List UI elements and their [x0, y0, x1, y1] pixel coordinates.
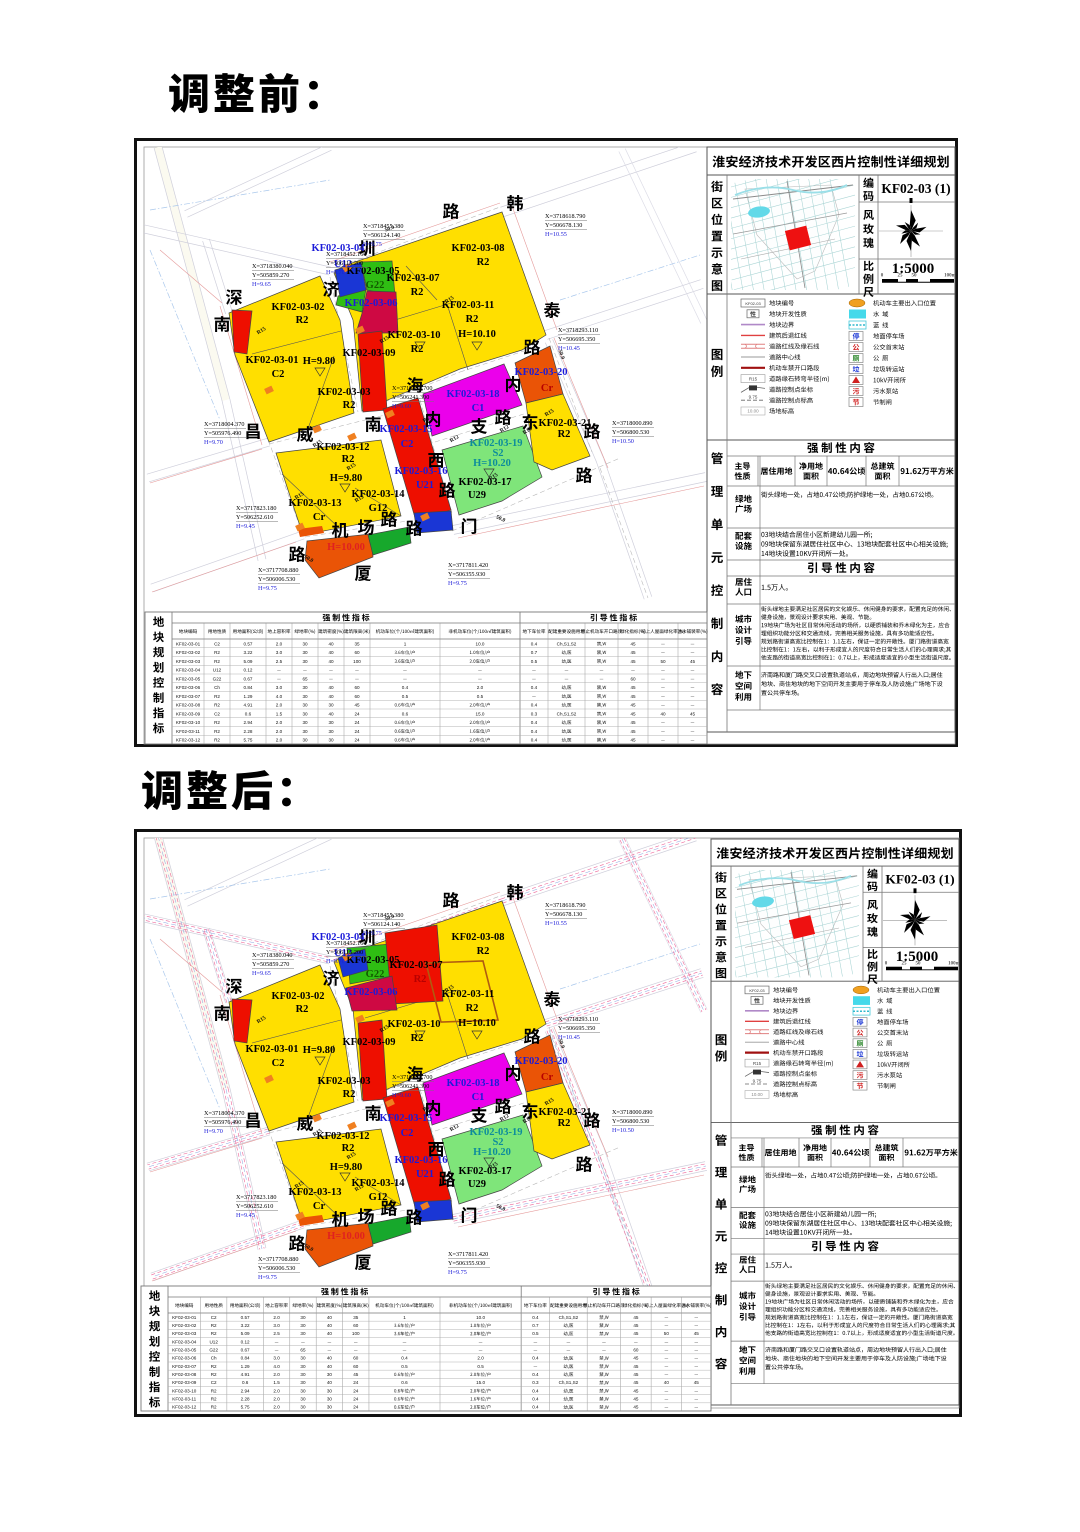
svg-text:40: 40: [328, 641, 334, 646]
svg-text:30: 30: [300, 1372, 306, 1377]
svg-text:3.22: 3.22: [244, 650, 253, 655]
svg-text:100: 100: [353, 659, 361, 664]
svg-text:R2: R2: [477, 257, 490, 268]
svg-text:KF02-03-07: KF02-03-07: [386, 273, 439, 284]
svg-text:0.7: 0.7: [531, 650, 538, 655]
svg-text:R2: R2: [214, 738, 220, 743]
svg-text:KF02-03 (1): KF02-03 (1): [885, 872, 954, 887]
svg-text:H=9.65: H=9.65: [252, 281, 271, 288]
svg-text:60: 60: [354, 685, 360, 690]
svg-text:Y=506800.530: Y=506800.530: [612, 429, 649, 436]
svg-text:60: 60: [353, 1364, 359, 1369]
svg-text:X=3718293.110: X=3718293.110: [558, 327, 598, 334]
svg-text:Ch: Ch: [214, 685, 220, 690]
svg-text:KF02-03: KF02-03: [745, 301, 761, 306]
svg-text:KF02-03-16: KF02-03-16: [394, 466, 447, 477]
svg-text:KF02-03-07: KF02-03-07: [176, 694, 201, 699]
svg-text:C1: C1: [472, 403, 485, 414]
svg-text:24: 24: [354, 711, 360, 716]
svg-text:40: 40: [328, 659, 334, 664]
svg-text:KF02-03-06: KF02-03-06: [176, 685, 201, 690]
svg-text:Y=506695.350: Y=506695.350: [558, 1025, 595, 1032]
svg-text:0.4: 0.4: [532, 1372, 539, 1377]
svg-text:G12: G12: [369, 1192, 388, 1203]
svg-text:45: 45: [633, 1364, 639, 1369]
svg-text:KF02-03-08: KF02-03-08: [172, 1372, 197, 1377]
svg-text:15.0: 15.0: [476, 1380, 485, 1385]
svg-text:KF02-03-08: KF02-03-08: [176, 703, 201, 708]
svg-text:9.75: 9.75: [753, 1079, 762, 1084]
svg-text:45: 45: [633, 1397, 639, 1402]
svg-text:Y=506241.300: Y=506241.300: [392, 394, 429, 401]
svg-text:C1: C1: [472, 1092, 485, 1103]
svg-text:0.57: 0.57: [244, 641, 253, 646]
svg-text:45: 45: [630, 738, 636, 743]
svg-text:KF02-03-20: KF02-03-20: [514, 367, 567, 378]
svg-text:KF02-03-02: KF02-03-02: [172, 1323, 197, 1328]
svg-text:R2: R2: [211, 1331, 217, 1336]
svg-text:40: 40: [328, 711, 334, 716]
svg-text:KF02-03-16: KF02-03-16: [394, 1155, 447, 1166]
svg-text:R2: R2: [558, 429, 571, 440]
svg-text:2.0: 2.0: [273, 1388, 280, 1393]
svg-text:2.0: 2.0: [477, 685, 484, 690]
svg-text:25: 25: [898, 274, 904, 279]
svg-text:KF02-03-08: KF02-03-08: [451, 932, 504, 943]
svg-text:H=9.75: H=9.75: [258, 585, 277, 592]
svg-text:C2: C2: [211, 1380, 217, 1385]
svg-text:24: 24: [353, 1405, 359, 1410]
svg-text:45: 45: [353, 1372, 359, 1377]
svg-text:KF02-03-08: KF02-03-08: [451, 243, 504, 254]
svg-text:45: 45: [630, 641, 636, 646]
svg-text:30: 30: [328, 729, 334, 734]
svg-text:45: 45: [630, 729, 636, 734]
svg-text:5.75: 5.75: [241, 1405, 250, 1410]
svg-text:0.7: 0.7: [532, 1323, 539, 1328]
svg-text:65: 65: [302, 676, 308, 681]
svg-text:X=3718618.790: X=3718618.790: [545, 213, 585, 220]
svg-text:KF02-03-12: KF02-03-12: [176, 738, 201, 743]
svg-text:0.12: 0.12: [241, 1339, 250, 1344]
svg-text:KF02-03-21: KF02-03-21: [538, 1107, 591, 1118]
svg-text:R2: R2: [296, 315, 309, 326]
svg-text:0.57: 0.57: [241, 1315, 250, 1320]
svg-text:60: 60: [353, 1356, 359, 1361]
svg-text:40: 40: [664, 1380, 670, 1385]
svg-text:U29: U29: [468, 1179, 486, 1190]
svg-text:H=9.75: H=9.75: [363, 241, 382, 248]
svg-text:3.0: 3.0: [276, 650, 283, 655]
svg-text:30: 30: [327, 1397, 333, 1402]
svg-text:KF02-03-06: KF02-03-06: [172, 1356, 197, 1361]
svg-text:KF02-03-15: KF02-03-15: [379, 1113, 432, 1124]
svg-text:1.29: 1.29: [244, 694, 253, 699]
svg-text:1.29: 1.29: [241, 1364, 250, 1369]
svg-text:KF02-03-02: KF02-03-02: [271, 302, 324, 313]
svg-text:45: 45: [633, 1323, 639, 1328]
svg-text:24: 24: [353, 1388, 359, 1393]
svg-text:30: 30: [300, 1364, 306, 1369]
svg-text:40: 40: [660, 711, 666, 716]
svg-text:50: 50: [660, 659, 666, 664]
svg-text:0.4: 0.4: [531, 641, 538, 646]
svg-text:50: 50: [664, 1331, 670, 1336]
svg-text:X=3718452.160: X=3718452.160: [326, 940, 366, 947]
svg-text:2.5: 2.5: [276, 659, 283, 664]
svg-text:2.0: 2.0: [276, 738, 283, 743]
svg-text:R2: R2: [211, 1405, 217, 1410]
svg-text:2.28: 2.28: [241, 1397, 250, 1402]
svg-text:2.94: 2.94: [241, 1388, 250, 1393]
svg-text:KF02-03-12: KF02-03-12: [316, 1131, 369, 1142]
svg-text:G22: G22: [209, 1348, 218, 1353]
svg-text:U12: U12: [209, 1339, 218, 1344]
svg-text:0.4: 0.4: [532, 1388, 539, 1393]
svg-text:0.84: 0.84: [244, 685, 253, 690]
svg-text:30: 30: [302, 650, 308, 655]
svg-text:2.0: 2.0: [273, 1397, 280, 1402]
svg-text:KF02-03-15: KF02-03-15: [379, 424, 432, 435]
svg-text:C2: C2: [272, 369, 285, 380]
svg-text:45: 45: [630, 694, 636, 699]
svg-text:X=3718129.700: X=3718129.700: [392, 1074, 432, 1081]
svg-text:X=3718000.890: X=3718000.890: [612, 420, 652, 427]
svg-text:5.09: 5.09: [241, 1331, 250, 1336]
svg-text:40: 40: [327, 1331, 333, 1336]
svg-text:Ch,S1,S2: Ch,S1,S2: [557, 641, 577, 646]
svg-text:KF02-03-05: KF02-03-05: [176, 676, 201, 681]
svg-text:Cr: Cr: [313, 1201, 326, 1212]
svg-text:U21: U21: [416, 480, 434, 491]
svg-text:R2: R2: [211, 1388, 217, 1393]
svg-text:X=3717811.420: X=3717811.420: [448, 562, 488, 569]
svg-text:X=3717823.180: X=3717823.180: [236, 1194, 276, 1201]
svg-text:100: 100: [352, 1331, 360, 1336]
svg-text:KF02-03-17: KF02-03-17: [458, 477, 511, 488]
svg-text:R15: R15: [753, 1061, 762, 1066]
svg-text:Y=506241.300: Y=506241.300: [392, 1083, 429, 1090]
svg-text:Y=506355.930: Y=506355.930: [448, 571, 485, 578]
svg-text:R2: R2: [558, 1118, 571, 1129]
svg-text:X=3718452.160: X=3718452.160: [326, 251, 366, 258]
svg-text:U21: U21: [416, 1169, 434, 1180]
svg-text:0.5: 0.5: [477, 1364, 484, 1369]
svg-text:X=3718000.890: X=3718000.890: [612, 1109, 652, 1116]
svg-text:X=3717708.880: X=3717708.880: [258, 567, 298, 574]
svg-text:45: 45: [694, 1331, 700, 1336]
svg-text:U12: U12: [213, 668, 222, 673]
svg-text:KF02-03-09: KF02-03-09: [342, 348, 395, 359]
svg-text:X=3717708.880: X=3717708.880: [258, 1256, 298, 1263]
svg-text:45: 45: [354, 703, 360, 708]
svg-text:X=3717811.420: X=3717811.420: [448, 1251, 488, 1258]
svg-text:2.0: 2.0: [273, 1405, 280, 1410]
svg-text:KF02-03-18: KF02-03-18: [446, 389, 499, 400]
svg-text:0.84: 0.84: [241, 1356, 250, 1361]
svg-text:3.22: 3.22: [241, 1323, 250, 1328]
svg-text:Y=505976.490: Y=505976.490: [204, 1119, 241, 1126]
svg-text:KF02-03-04: KF02-03-04: [176, 668, 201, 673]
svg-text:40: 40: [328, 685, 334, 690]
svg-text:0.4: 0.4: [532, 1397, 539, 1402]
svg-text:100m: 100m: [948, 961, 960, 966]
svg-text:30: 30: [300, 1405, 306, 1410]
svg-text:Y=506252.610: Y=506252.610: [236, 1203, 273, 1210]
svg-text:45: 45: [633, 1380, 639, 1385]
svg-text:1: 1: [403, 1315, 406, 1320]
svg-text:H=9.60: H=9.60: [392, 403, 411, 410]
svg-text:KF02-03-12: KF02-03-12: [172, 1405, 197, 1410]
svg-text:Y=506006.530: Y=506006.530: [258, 1265, 295, 1272]
svg-text:24: 24: [353, 1380, 359, 1385]
svg-text:30: 30: [302, 659, 308, 664]
svg-text:G22: G22: [366, 969, 385, 980]
svg-text:KF02-03-01: KF02-03-01: [245, 355, 298, 366]
svg-text:C2: C2: [211, 1315, 217, 1320]
svg-text:0.4: 0.4: [531, 729, 538, 734]
svg-text:60: 60: [633, 1348, 639, 1353]
svg-text:H=9.75: H=9.75: [448, 580, 467, 587]
svg-text:H=10.55: H=10.55: [545, 920, 567, 927]
svg-text:R2: R2: [214, 659, 220, 664]
svg-text:Y=506115.200: Y=506115.200: [326, 949, 363, 956]
svg-text:KF02-03-01: KF02-03-01: [176, 641, 201, 646]
svg-text:50: 50: [912, 274, 918, 279]
svg-text:0.12: 0.12: [244, 668, 253, 673]
svg-text:35: 35: [354, 641, 360, 646]
svg-text:KF02-03-06: KF02-03-06: [344, 298, 397, 309]
svg-text:H=9.45: H=9.45: [236, 1212, 255, 1219]
svg-text:4.91: 4.91: [241, 1372, 250, 1377]
svg-text:G22: G22: [213, 676, 222, 681]
svg-text:0.4: 0.4: [532, 1405, 539, 1410]
svg-text:R2: R2: [296, 1004, 309, 1015]
svg-text:X=3718380.040: X=3718380.040: [252, 263, 292, 270]
svg-text:30: 30: [327, 1372, 333, 1377]
svg-text:30: 30: [300, 1380, 306, 1385]
svg-text:KF02-03-05: KF02-03-05: [172, 1348, 197, 1353]
svg-text:KF02-03-01: KF02-03-01: [245, 1044, 298, 1055]
svg-text:Y=505859.270: Y=505859.270: [252, 961, 289, 968]
svg-text:H=9.80: H=9.80: [303, 1045, 336, 1056]
svg-text:0.4: 0.4: [531, 720, 538, 725]
svg-text:KF02-03-02: KF02-03-02: [176, 650, 201, 655]
svg-text:H=10.50: H=10.50: [612, 438, 634, 445]
svg-text:0.5: 0.5: [532, 1331, 539, 1336]
svg-text:0.5: 0.5: [401, 1364, 408, 1369]
svg-text:H=9.45: H=9.45: [236, 523, 255, 530]
svg-text:30: 30: [300, 1356, 306, 1361]
svg-text:2.0: 2.0: [276, 641, 283, 646]
svg-text:1: 1: [404, 641, 407, 646]
svg-text:Cr: Cr: [541, 1072, 554, 1083]
svg-text:30: 30: [328, 703, 334, 708]
svg-text:H=10.20: H=10.20: [473, 458, 511, 469]
svg-text:H=10.10: H=10.10: [458, 329, 496, 340]
svg-text:1.5: 1.5: [273, 1380, 280, 1385]
svg-text:R2: R2: [214, 703, 220, 708]
svg-text:45: 45: [694, 1380, 700, 1385]
svg-text:2.5: 2.5: [273, 1331, 280, 1336]
svg-text:30: 30: [302, 694, 308, 699]
svg-text:1.5: 1.5: [276, 711, 283, 716]
svg-text:G22: G22: [366, 280, 385, 291]
svg-text:Y=506355.930: Y=506355.930: [448, 1260, 485, 1267]
svg-text:KF02-03-04: KF02-03-04: [172, 1339, 197, 1344]
svg-text:Ch,S1,S2: Ch,S1,S2: [559, 1315, 579, 1320]
svg-text:2.28: 2.28: [244, 729, 253, 734]
svg-text:0.5: 0.5: [531, 659, 538, 664]
svg-text:H=10.50: H=10.50: [612, 1127, 634, 1134]
svg-text:KF02-03-20: KF02-03-20: [514, 1056, 567, 1067]
svg-text:H=9.80: H=9.80: [303, 356, 336, 367]
svg-text:Ch: Ch: [211, 1356, 217, 1361]
svg-text:45: 45: [690, 659, 696, 664]
svg-text:30: 30: [302, 685, 308, 690]
svg-text:X=3718455.380: X=3718455.380: [363, 223, 403, 230]
svg-text:R2: R2: [466, 1003, 479, 1014]
svg-text:24: 24: [354, 720, 360, 725]
svg-text:Ch,S1,S2: Ch,S1,S2: [557, 711, 577, 716]
svg-text:45: 45: [630, 650, 636, 655]
svg-text:0.4: 0.4: [532, 1315, 539, 1320]
svg-text:H=9.75: H=9.75: [448, 1269, 467, 1276]
svg-text:X=3718004.370: X=3718004.370: [204, 421, 244, 428]
svg-text:60: 60: [353, 1323, 359, 1328]
svg-text:0.5: 0.5: [477, 694, 484, 699]
svg-text:30: 30: [328, 738, 334, 743]
svg-text:KF02-03-03: KF02-03-03: [176, 659, 201, 664]
svg-text:X=3718455.380: X=3718455.380: [363, 912, 403, 919]
svg-text:KF02-03-10: KF02-03-10: [387, 330, 440, 341]
svg-text:30: 30: [302, 711, 308, 716]
svg-text:KF02-03-12: KF02-03-12: [316, 442, 369, 453]
svg-text:R2: R2: [477, 946, 490, 957]
svg-text:R2: R2: [214, 720, 220, 725]
svg-text:H=9.70: H=9.70: [204, 1128, 223, 1135]
svg-text:0.6: 0.6: [245, 711, 252, 716]
svg-text:Y=506800.530: Y=506800.530: [612, 1118, 649, 1125]
svg-text:H=9.70: H=9.70: [326, 958, 345, 965]
svg-text:10.0: 10.0: [476, 1315, 485, 1320]
svg-text:2.0: 2.0: [273, 1315, 280, 1320]
svg-text:U29: U29: [468, 490, 486, 501]
svg-text:2.94: 2.94: [244, 720, 253, 725]
svg-text:60: 60: [354, 694, 360, 699]
svg-text:KF02-03-03: KF02-03-03: [317, 1076, 370, 1087]
svg-text:0.4: 0.4: [531, 738, 538, 743]
svg-text:30: 30: [302, 703, 308, 708]
svg-text:60: 60: [354, 650, 360, 655]
svg-text:4.0: 4.0: [276, 694, 283, 699]
svg-text:Y=506252.610: Y=506252.610: [236, 514, 273, 521]
svg-text:C2: C2: [272, 1058, 285, 1069]
svg-text:0.67: 0.67: [241, 1348, 250, 1353]
svg-text:15.0: 15.0: [476, 711, 485, 716]
svg-text:KF02-03-10: KF02-03-10: [172, 1388, 197, 1393]
svg-text:KF02-03-01: KF02-03-01: [172, 1315, 197, 1320]
svg-text:40: 40: [327, 1364, 333, 1369]
svg-text:H=10.10: H=10.10: [458, 1018, 496, 1029]
svg-text:10.0: 10.0: [476, 641, 485, 646]
svg-text:X=3718293.110: X=3718293.110: [558, 1016, 598, 1023]
svg-text:R2: R2: [411, 287, 424, 298]
svg-text:R2: R2: [211, 1397, 217, 1402]
svg-text:45: 45: [630, 720, 636, 725]
svg-text:Y=506678.130: Y=506678.130: [545, 222, 582, 229]
svg-text:45: 45: [630, 703, 636, 708]
svg-text:H=10.00: H=10.00: [327, 1231, 365, 1242]
svg-text:KF02-03-09: KF02-03-09: [172, 1380, 197, 1385]
svg-text:R2: R2: [466, 314, 479, 325]
svg-text:Cr: Cr: [541, 383, 554, 394]
svg-text:R2: R2: [211, 1372, 217, 1377]
svg-text:35: 35: [353, 1315, 359, 1320]
svg-text:45: 45: [633, 1405, 639, 1410]
svg-text:0.3: 0.3: [532, 1380, 539, 1385]
svg-text:24: 24: [354, 729, 360, 734]
svg-text:100m: 100m: [944, 274, 957, 279]
svg-text:X=3718129.700: X=3718129.700: [392, 385, 432, 392]
svg-text:30: 30: [300, 1323, 306, 1328]
svg-text:9.75: 9.75: [749, 395, 758, 400]
svg-text:X=3717823.180: X=3717823.180: [236, 505, 276, 512]
svg-text:30: 30: [302, 729, 308, 734]
svg-text:H=9.70: H=9.70: [204, 439, 223, 446]
svg-text:Y=506678.130: Y=506678.130: [545, 911, 582, 918]
svg-text:R2: R2: [211, 1323, 217, 1328]
svg-text:X=3718004.370: X=3718004.370: [204, 1110, 244, 1117]
svg-text:KF02-03-09: KF02-03-09: [176, 711, 201, 716]
svg-text:H=9.65: H=9.65: [252, 970, 271, 977]
svg-text:40: 40: [328, 694, 334, 699]
svg-text:2.0: 2.0: [276, 729, 283, 734]
svg-text:10.00: 10.00: [747, 409, 759, 414]
svg-text:2.0: 2.0: [273, 1372, 280, 1377]
svg-text:0.6: 0.6: [402, 711, 409, 716]
svg-text:30: 30: [302, 641, 308, 646]
svg-text:H=10.00: H=10.00: [327, 542, 365, 553]
svg-text:KF02-03-06: KF02-03-06: [344, 987, 397, 998]
svg-text:KF02-03-17: KF02-03-17: [458, 1166, 511, 1177]
svg-text:Y=506124.140: Y=506124.140: [363, 921, 400, 928]
svg-text:Y=505859.270: Y=505859.270: [252, 272, 289, 279]
svg-text:0.6: 0.6: [242, 1380, 249, 1385]
svg-text:30: 30: [327, 1388, 333, 1393]
svg-text:45: 45: [630, 659, 636, 664]
svg-text:4.91: 4.91: [244, 703, 253, 708]
svg-text:50: 50: [916, 961, 922, 966]
svg-text:R2: R2: [214, 729, 220, 734]
svg-text:40: 40: [327, 1323, 333, 1328]
svg-text:Y=506695.350: Y=506695.350: [558, 336, 595, 343]
svg-text:KF02-03-18: KF02-03-18: [446, 1078, 499, 1089]
svg-text:KF02-03-03: KF02-03-03: [317, 387, 370, 398]
svg-text:KF02-03-21: KF02-03-21: [538, 418, 591, 429]
svg-text:2.0: 2.0: [276, 720, 283, 725]
svg-text:KF02-03-07: KF02-03-07: [389, 960, 442, 971]
svg-text:R2: R2: [211, 1364, 217, 1369]
svg-text:H=9.75: H=9.75: [363, 930, 382, 937]
svg-text:3.0: 3.0: [273, 1356, 280, 1361]
svg-text:C2: C2: [401, 439, 414, 450]
svg-text:25: 25: [902, 961, 908, 966]
svg-text:H=9.80: H=9.80: [330, 473, 363, 484]
svg-text:C2: C2: [214, 641, 220, 646]
svg-text:KF02-03 (1): KF02-03 (1): [881, 181, 950, 196]
svg-text:H=9.80: H=9.80: [330, 1162, 363, 1173]
